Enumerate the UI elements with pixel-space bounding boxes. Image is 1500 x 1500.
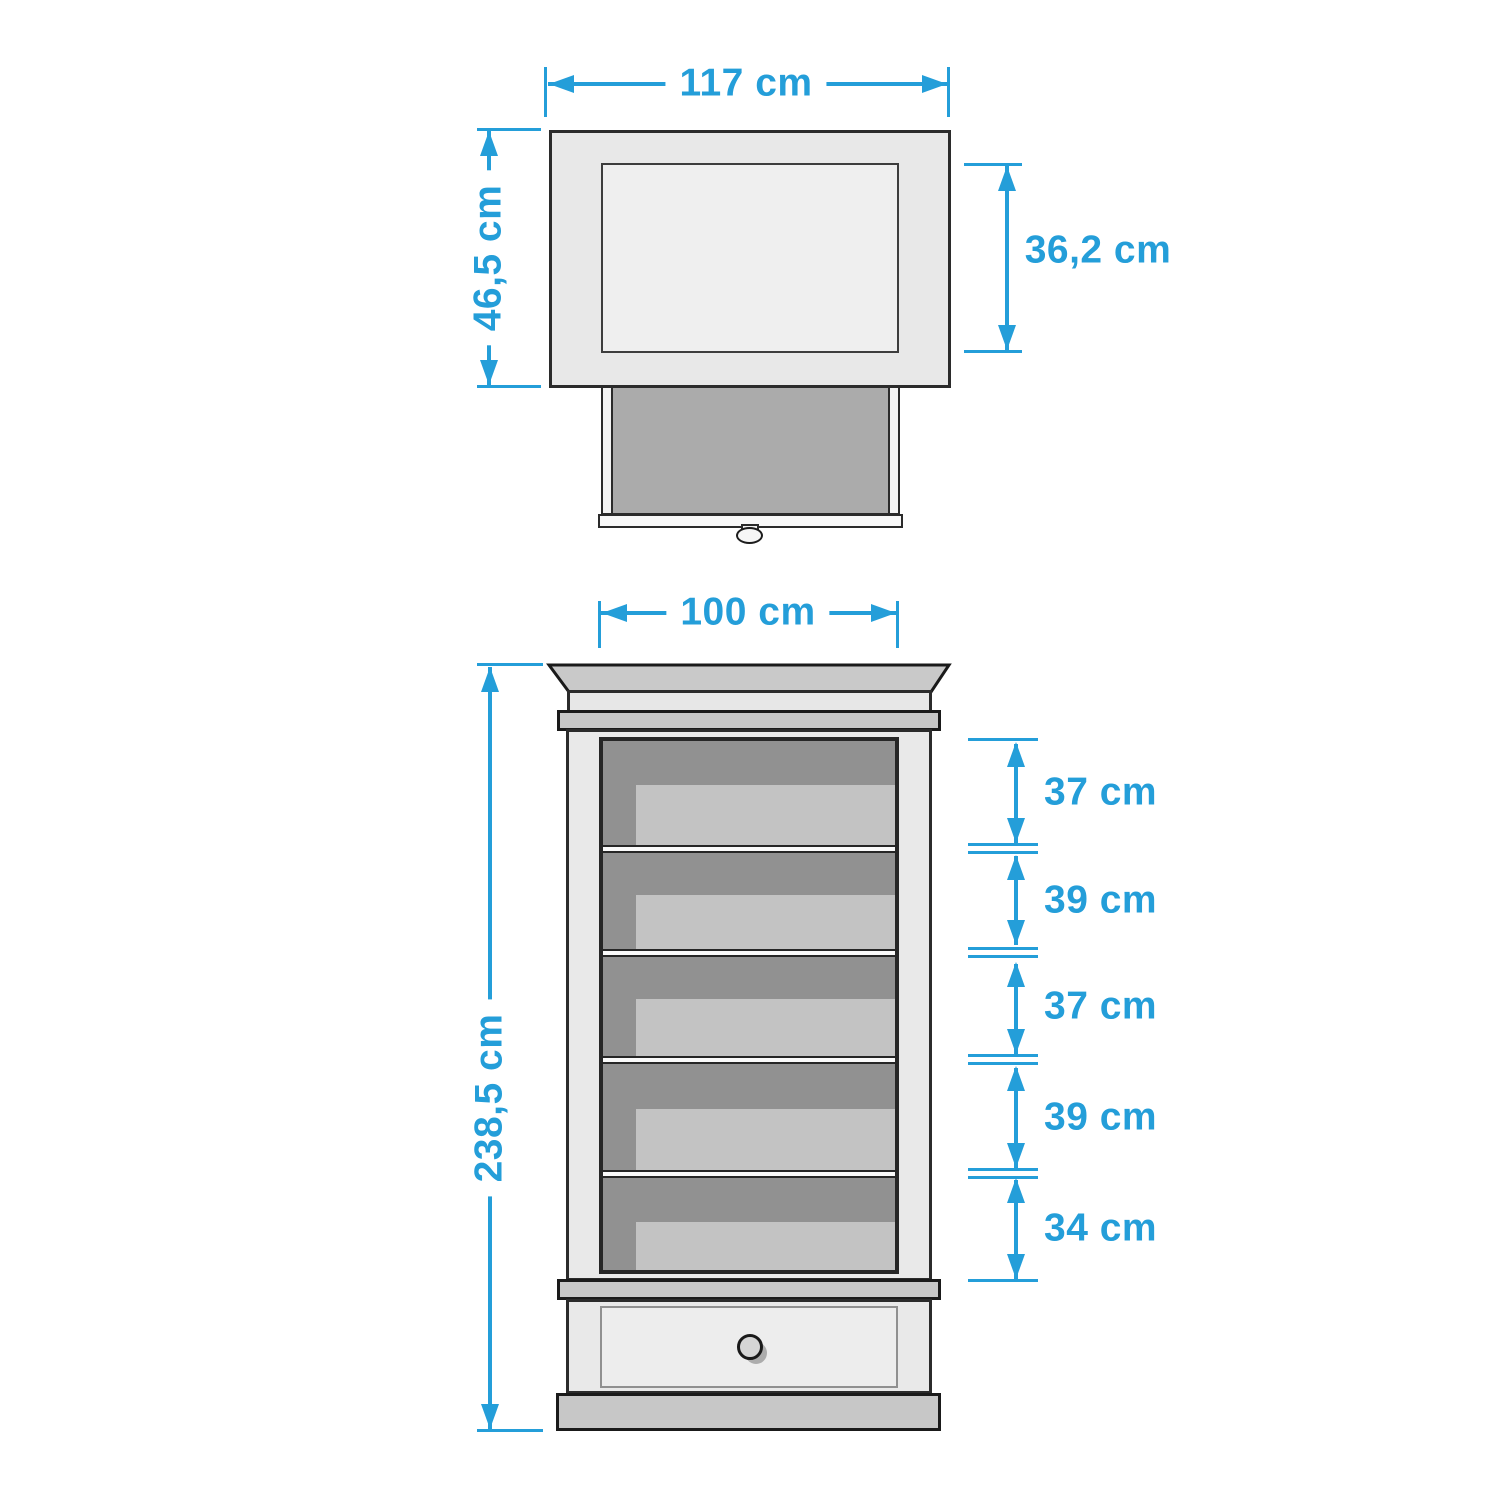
shelf-compartment [603, 957, 895, 1056]
compartment-height-label: 37 cm [1044, 771, 1157, 816]
shelf-board [636, 1109, 895, 1170]
shelf-divider [603, 949, 895, 957]
extension-line [968, 1062, 1038, 1065]
arrow-down-icon [1007, 1254, 1025, 1279]
arrow-up-icon [998, 166, 1016, 191]
shelf-compartment [603, 741, 895, 845]
shelf-divider [603, 1056, 895, 1064]
arrow-down-icon [1007, 1143, 1025, 1168]
extension-line [598, 601, 601, 648]
top-view-depth-label: 46,5 cm [467, 171, 512, 346]
top-view-top-panel [601, 163, 899, 353]
lower-trim-band [557, 1279, 941, 1300]
shelf-board [636, 785, 895, 845]
arrow-left-icon [602, 604, 627, 622]
extension-line [968, 851, 1038, 854]
shelf-board [636, 895, 895, 949]
extension-line [968, 1168, 1038, 1171]
arrow-up-icon [1007, 962, 1025, 987]
arrow-right-icon [922, 75, 947, 93]
extension-line [477, 385, 541, 388]
arrow-up-icon [1007, 855, 1025, 880]
furniture-dimension-diagram: 117 cm 46,5 cm 36,2 cm [0, 0, 1500, 1500]
top-view-inner-depth-label: 36,2 cm [1025, 229, 1172, 274]
extension-line [968, 947, 1038, 950]
extension-line [947, 67, 950, 117]
arrow-down-icon [480, 360, 498, 385]
arrow-down-icon [1007, 818, 1025, 843]
shelf-board [636, 999, 895, 1056]
arrow-up-icon [1007, 1178, 1025, 1203]
arrow-up-icon [1007, 742, 1025, 767]
front-view-height-label: 238,5 cm [468, 1000, 513, 1197]
arrow-down-icon [998, 325, 1016, 350]
compartment-height-label: 34 cm [1044, 1207, 1157, 1252]
extension-line [477, 1429, 543, 1432]
upper-trim-band [557, 710, 941, 731]
shelf-divider [603, 845, 895, 853]
shelf-compartment [603, 1178, 895, 1270]
front-view-width-label: 100 cm [666, 591, 829, 636]
extension-line [964, 350, 1022, 353]
arrow-up-icon [480, 131, 498, 156]
arrow-down-icon [1007, 1029, 1025, 1054]
extension-line [896, 601, 899, 648]
shelf-divider [603, 1170, 895, 1178]
extension-line [477, 663, 543, 666]
compartment-height-label: 39 cm [1044, 1096, 1157, 1141]
extension-line [968, 843, 1038, 846]
compartment-height-label: 39 cm [1044, 879, 1157, 924]
extension-line [968, 1176, 1038, 1179]
extension-line [544, 67, 547, 117]
shelf-board [636, 1222, 895, 1270]
arrow-right-icon [871, 604, 896, 622]
extension-line [968, 1279, 1038, 1282]
shelf-compartment [603, 1064, 895, 1170]
shelf-compartment [603, 853, 895, 949]
extension-line [968, 1054, 1038, 1057]
dimension-line [1005, 166, 1009, 350]
arrow-up-icon [481, 667, 499, 692]
extension-line [968, 955, 1038, 958]
plinth [556, 1393, 941, 1431]
open-drawer-cavity [611, 388, 890, 515]
arrow-up-icon [1007, 1066, 1025, 1091]
drawer-knob [737, 1334, 763, 1360]
arrow-down-icon [481, 1404, 499, 1429]
arrow-left-icon [549, 75, 574, 93]
arrow-down-icon [1007, 920, 1025, 945]
extension-line [968, 738, 1038, 741]
open-drawer-knob [736, 527, 763, 544]
compartment-height-label: 37 cm [1044, 985, 1157, 1030]
top-view-width-label: 117 cm [665, 62, 826, 107]
